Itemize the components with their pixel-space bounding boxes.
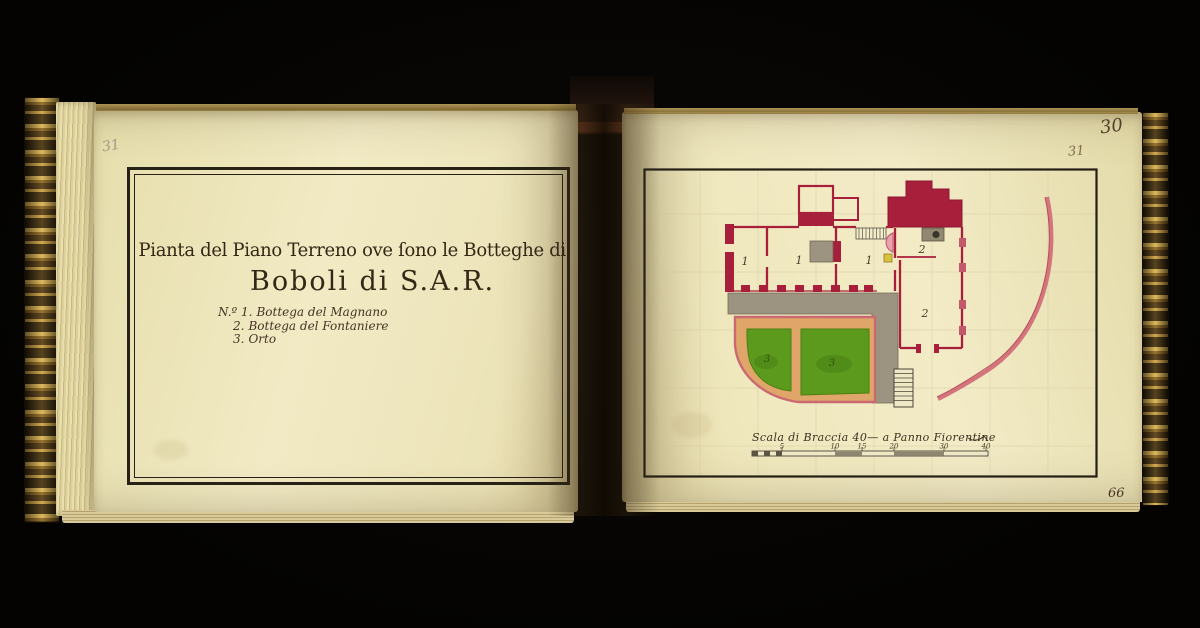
legend-number: 3. xyxy=(233,332,244,346)
room-label-2a: 2 xyxy=(918,243,926,256)
plan-legend: N.º 1.Bottega del Magnano 2.Bottega del … xyxy=(218,306,388,347)
interior-staircase xyxy=(856,228,886,239)
tick-5: 5 xyxy=(780,443,785,451)
interior-block xyxy=(810,241,833,262)
pencil-folio-right: 31 xyxy=(1067,143,1085,159)
upper-left-annex xyxy=(798,186,858,226)
legend-label: Bottega del Fontaniere xyxy=(248,319,388,333)
legend-item-orto: 3.Orto xyxy=(233,333,388,347)
gilded-fore-edge-right xyxy=(1142,112,1169,506)
pencil-folio-left: 31 xyxy=(101,137,121,156)
building-mass xyxy=(888,181,962,227)
exterior-stairs xyxy=(894,369,913,407)
page-edge-stack-left xyxy=(56,102,96,516)
gilt-top-edge-right xyxy=(624,108,1138,114)
gilded-fore-edge-left xyxy=(24,97,60,523)
title-frame: Pianta del Piano Terreno ove ſono le Bot… xyxy=(127,167,570,485)
page-number-66: 66 xyxy=(1108,486,1125,501)
boboli-floor-plan: 1 1 1 2 2 3 3 Scala di Braccia 40— a Pan… xyxy=(643,168,1098,478)
tick-15: 15 xyxy=(858,443,867,451)
plan-title-line2: Boboli di S.A.R. xyxy=(250,266,495,297)
room-label-1c: 1 xyxy=(866,254,873,267)
gilt-top-edge-left xyxy=(96,104,576,111)
room-label-2b: 2 xyxy=(921,307,929,320)
basin-square xyxy=(884,254,892,262)
scale-bar: 5 10 15 20 30 40 xyxy=(752,443,991,457)
left-page: 31 Pianta del Piano Terreno ove ſono le … xyxy=(94,110,578,512)
plan-title-line1: Pianta del Piano Terreno ove ſono le Bot… xyxy=(138,240,558,261)
legend-number: N.º 1. xyxy=(218,305,252,319)
well-block xyxy=(922,228,944,241)
legend-label: Bottega del Magnano xyxy=(256,305,387,319)
fountain-half-round xyxy=(886,233,893,252)
right-page: 30 31 66 xyxy=(622,112,1142,502)
garden-label-3a: 3 xyxy=(764,354,770,365)
manuscript-book-photo: 31 Pianta del Piano Terreno ove ſono le … xyxy=(0,0,1200,628)
pilaster-row xyxy=(728,285,877,292)
legend-item-fontaniere: 2.Bottega del Fontaniere xyxy=(233,320,388,334)
tick-40: 40 xyxy=(981,443,991,451)
room-label-1a: 1 xyxy=(742,255,749,268)
tick-20: 20 xyxy=(889,443,899,451)
ink-folio-corner: 30 xyxy=(1099,115,1125,139)
legend-number: 2. xyxy=(233,319,244,333)
paper-stain xyxy=(154,440,188,460)
scale-caption: Scala di Braccia 40— a Panno Fiorentine xyxy=(752,431,996,444)
room-label-1b: 1 xyxy=(796,254,803,267)
tick-10: 10 xyxy=(831,443,840,451)
tick-30: 30 xyxy=(940,443,949,451)
legend-item-magnano: N.º 1.Bottega del Magnano xyxy=(218,306,388,320)
garden-label-3b: 3 xyxy=(829,358,835,369)
legend-label: Orto xyxy=(248,332,276,346)
